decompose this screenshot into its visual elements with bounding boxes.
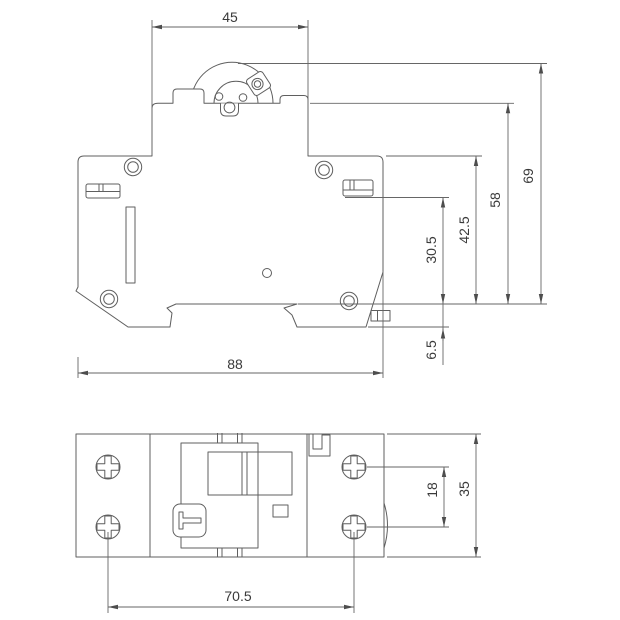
dimension-label-42-5: 42.5 (456, 216, 472, 243)
dimension-label-69: 69 (520, 168, 536, 184)
clip-pull-bump (384, 503, 388, 548)
dimension-label-45: 45 (222, 9, 238, 25)
side-view (76, 62, 390, 327)
dimension-6-5: 6.5 (368, 304, 449, 365)
toggle-screw-plate (245, 70, 271, 96)
toggle-pivot-tab (221, 103, 239, 116)
dimension-label-35: 35 (456, 481, 472, 497)
plan-view (76, 433, 388, 557)
din-rail-clip (371, 311, 390, 322)
toggle-hole-right (239, 94, 247, 102)
dimension-label-70-5: 70.5 (224, 588, 251, 604)
test-button (173, 504, 206, 537)
toggle-hole-left (215, 93, 223, 101)
dimension-label-18: 18 (424, 482, 440, 498)
drawing-page: 45 88 30.5 42.5 58 (0, 0, 620, 620)
breaker-body-outline (76, 89, 383, 327)
dimension-42-5: 42.5 (386, 156, 482, 304)
dimension-label-6-5: 6.5 (423, 340, 439, 360)
dimension-label-30-5: 30.5 (423, 236, 439, 263)
mcb-technical-drawing: 45 88 30.5 42.5 58 (0, 0, 620, 620)
dimension-label-88: 88 (227, 356, 243, 372)
dimension-label-58: 58 (487, 192, 503, 208)
